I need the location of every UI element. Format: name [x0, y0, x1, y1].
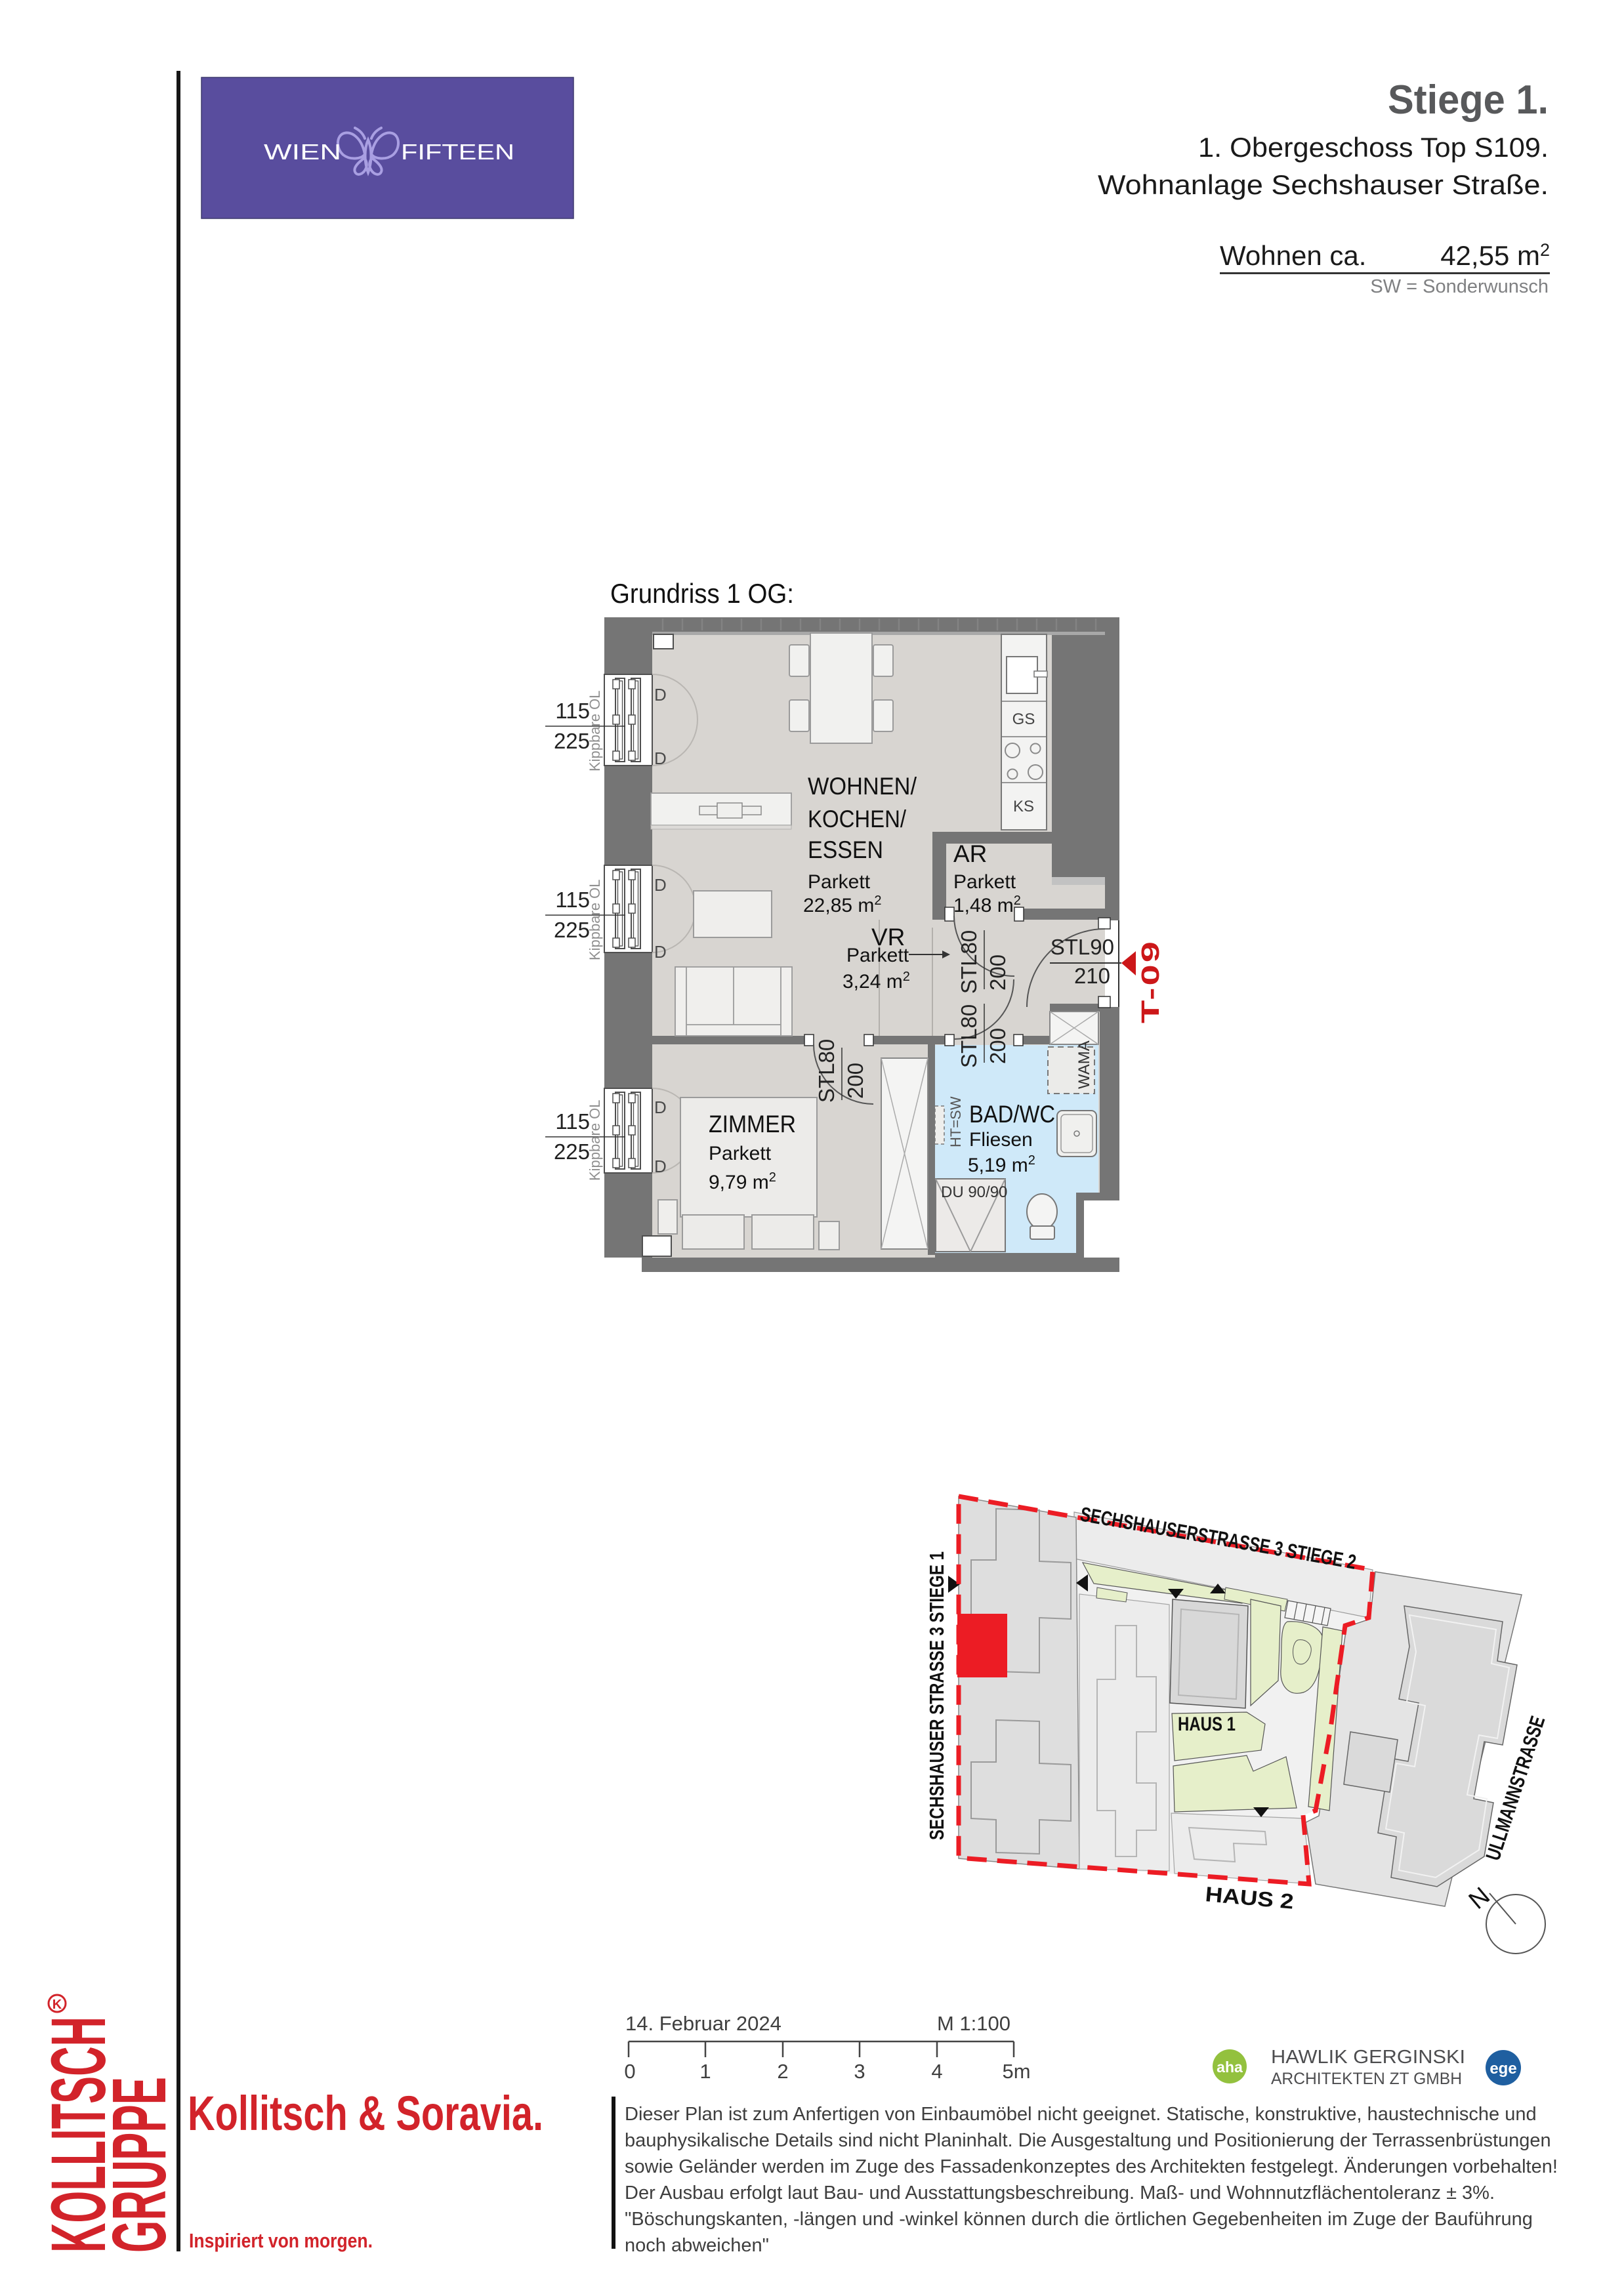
svg-text:BAD/WC: BAD/WC: [969, 1101, 1055, 1128]
svg-text:5,19 m2: 5,19 m2: [968, 1153, 1035, 1176]
svg-text:42,55 m2: 42,55 m2: [1440, 240, 1550, 271]
svg-text:HAUS 1: HAUS 1: [1178, 1713, 1236, 1735]
svg-text:D: D: [654, 875, 667, 895]
svg-text:200: 200: [986, 1028, 1010, 1064]
svg-text:KOCHEN/: KOCHEN/: [808, 806, 907, 832]
svg-text:2: 2: [777, 2060, 788, 2083]
svg-text:14. Februar 2024: 14. Februar 2024: [625, 2012, 781, 2035]
svg-text:Parkett: Parkett: [846, 945, 909, 966]
svg-text:HAWLIK GERGINSKI: HAWLIK GERGINSKI: [1271, 2047, 1465, 2068]
svg-text:DU 90/90: DU 90/90: [941, 1183, 1007, 1201]
svg-text:GRUPPE: GRUPPE: [96, 2077, 182, 2253]
svg-text:9,79 m2: 9,79 m2: [709, 1170, 776, 1193]
svg-text:M 1:100: M 1:100: [937, 2012, 1010, 2035]
svg-text:Dieser Plan ist zum Anfertigen: Dieser Plan ist zum Anfertigen von Einba…: [625, 2104, 1537, 2125]
svg-text:WIEN: WIEN: [264, 140, 341, 164]
svg-text:D: D: [654, 942, 667, 962]
svg-text:115: 115: [555, 888, 590, 912]
svg-text:ZIMMER: ZIMMER: [709, 1111, 796, 1138]
svg-text:Stiege 1.: Stiege 1.: [1388, 77, 1549, 123]
svg-text:3: 3: [854, 2060, 865, 2083]
svg-text:3,24 m2: 3,24 m2: [843, 970, 910, 993]
svg-text:210: 210: [1074, 964, 1110, 988]
svg-text:Kollitsch & Soravia.: Kollitsch & Soravia.: [188, 2086, 543, 2141]
svg-text:"Böschungskanten, -längen und: "Böschungskanten, -längen und -winkel kö…: [625, 2209, 1533, 2230]
svg-text:STL80: STL80: [957, 1004, 981, 1068]
svg-text:FIFTEEN: FIFTEEN: [401, 140, 514, 164]
svg-text:D: D: [654, 1097, 667, 1117]
svg-text:WAMA: WAMA: [1075, 1040, 1093, 1089]
svg-text:GS: GS: [1012, 710, 1035, 728]
svg-text:sowie Geländer werden im Zuge: sowie Geländer werden im Zuge des Fassad…: [625, 2156, 1558, 2177]
svg-text:HT=SW: HT=SW: [947, 1096, 964, 1147]
svg-text:225: 225: [554, 729, 590, 753]
svg-text:22,85 m2: 22,85 m2: [803, 893, 882, 916]
svg-text:AR: AR: [953, 840, 987, 867]
svg-text:225: 225: [554, 918, 590, 942]
svg-text:K: K: [52, 1998, 62, 2012]
svg-text:Parkett: Parkett: [808, 871, 871, 893]
svg-text:SW = Sonderwunsch: SW = Sonderwunsch: [1370, 276, 1549, 297]
svg-text:WOHNEN/: WOHNEN/: [808, 773, 917, 800]
svg-text:D: D: [654, 748, 667, 768]
svg-text:Der Ausbau erfolgt laut Bau- u: Der Ausbau erfolgt laut Bau- und Ausstat…: [625, 2183, 1495, 2204]
svg-text:115: 115: [555, 1109, 590, 1134]
svg-text:aha: aha: [1217, 2059, 1243, 2076]
svg-text:1,48 m2: 1,48 m2: [953, 893, 1021, 916]
svg-text:1. Obergeschoss Top S109.: 1. Obergeschoss Top S109.: [1198, 132, 1549, 163]
svg-text:4: 4: [931, 2060, 942, 2083]
svg-text:Wohnen ca.: Wohnen ca.: [1220, 240, 1366, 271]
svg-text:STL80: STL80: [957, 930, 981, 994]
svg-text:Kippbare OL: Kippbare OL: [587, 690, 603, 771]
svg-text:Inspiriert von morgen.: Inspiriert von morgen.: [189, 2229, 373, 2252]
svg-text:115: 115: [555, 699, 590, 723]
svg-text:ege: ege: [1489, 2060, 1516, 2078]
svg-text:1: 1: [699, 2060, 711, 2083]
svg-text:noch abweichen": noch abweichen": [625, 2235, 769, 2256]
svg-text:Wohnanlage Sechshauser Straße.: Wohnanlage Sechshauser Straße.: [1098, 169, 1549, 200]
svg-text:Kippbare OL: Kippbare OL: [587, 1099, 603, 1181]
svg-text:STL80: STL80: [814, 1039, 839, 1103]
svg-text:D: D: [654, 685, 667, 705]
svg-text:200: 200: [843, 1063, 867, 1099]
svg-text:ESSEN: ESSEN: [808, 836, 883, 863]
svg-text:ARCHITEKTEN ZT GMBH: ARCHITEKTEN ZT GMBH: [1271, 2070, 1462, 2088]
svg-text:STL90: STL90: [1051, 935, 1114, 959]
svg-text:SECHSHAUSER STRASSE 3 STIEGE 1: SECHSHAUSER STRASSE 3 STIEGE 1: [925, 1551, 948, 1840]
svg-text:Kippbare OL: Kippbare OL: [587, 879, 603, 960]
svg-text:Parkett: Parkett: [953, 871, 1016, 893]
svg-text:Parkett: Parkett: [709, 1143, 772, 1164]
svg-text:0: 0: [624, 2060, 635, 2083]
svg-text:200: 200: [986, 954, 1010, 991]
svg-text:KS: KS: [1013, 798, 1034, 815]
svg-text:T-09: T-09: [1137, 939, 1165, 1023]
svg-text:D: D: [654, 1157, 667, 1176]
svg-text:Fliesen: Fliesen: [969, 1129, 1033, 1151]
svg-text:225: 225: [554, 1139, 590, 1164]
svg-text:5m: 5m: [1002, 2060, 1030, 2083]
svg-text:Grundriss 1 OG:: Grundriss 1 OG:: [610, 578, 794, 609]
svg-text:bauphysikalische Details sind: bauphysikalische Details sind nicht Plan…: [625, 2130, 1551, 2151]
